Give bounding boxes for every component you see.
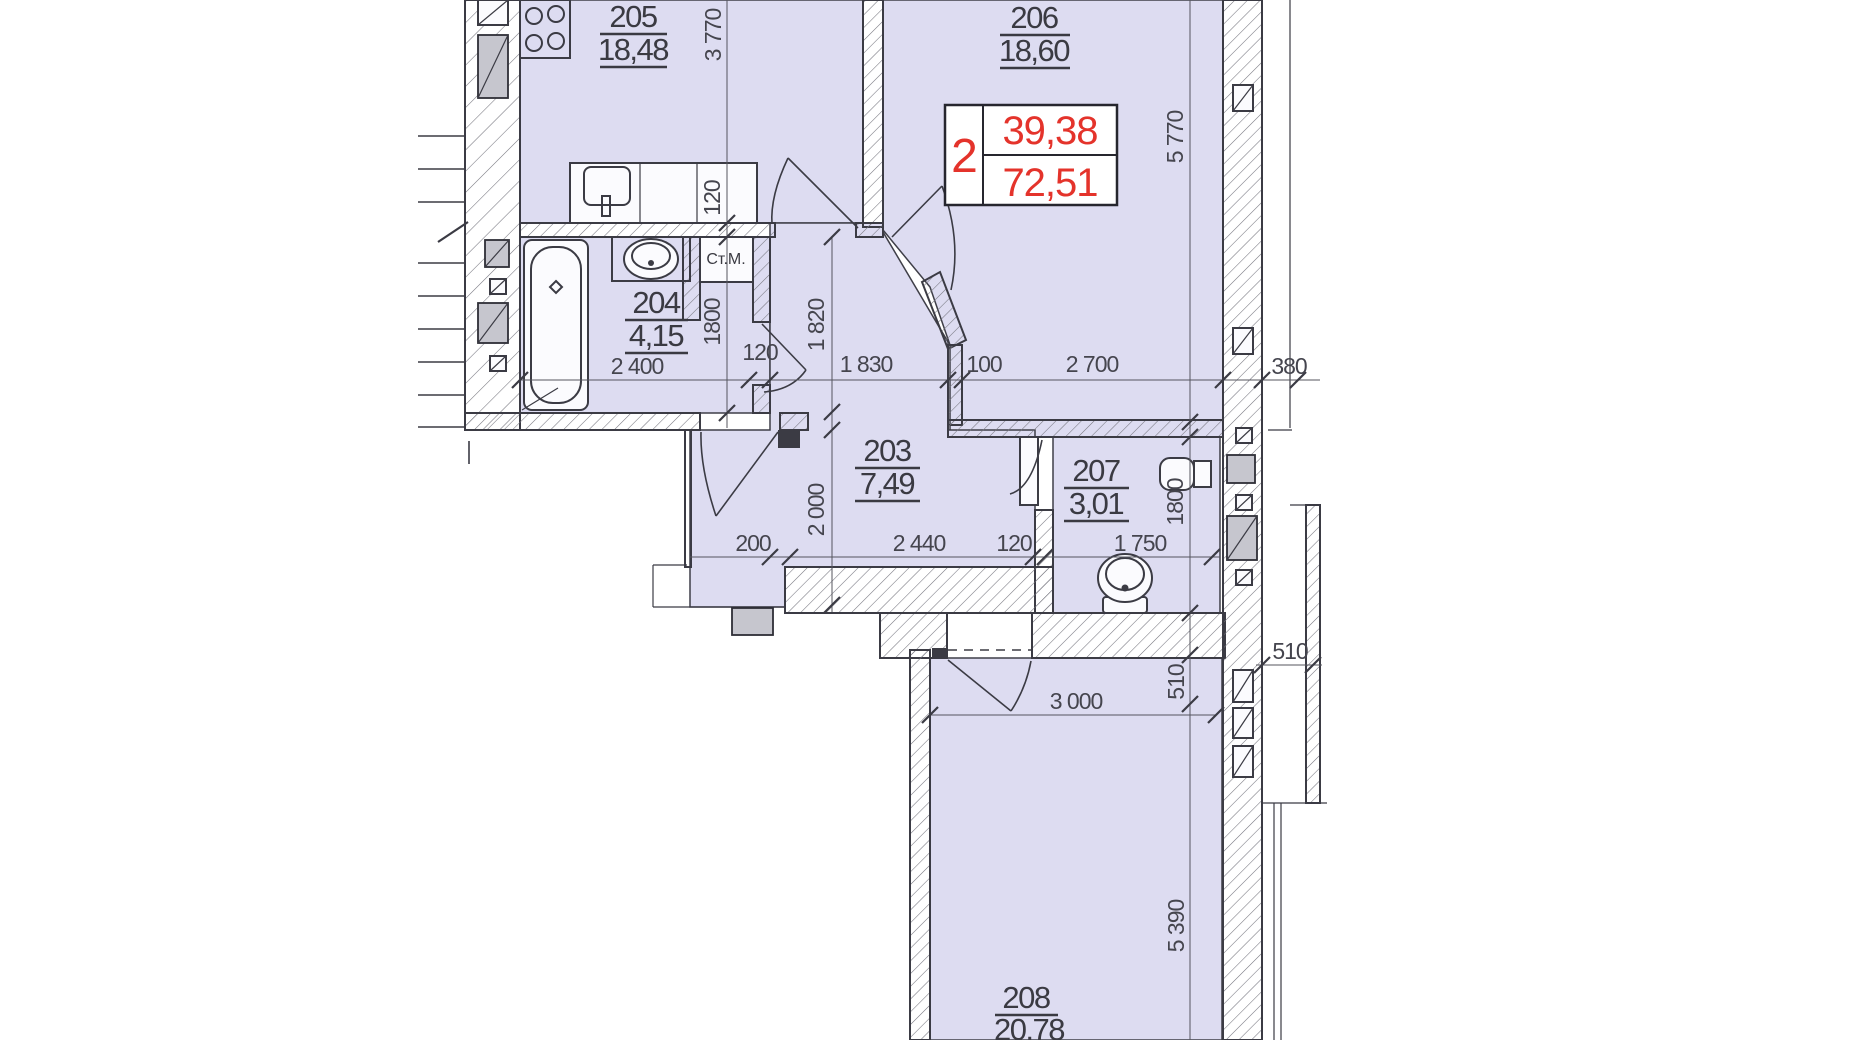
kitchen-bottom-wall: [520, 223, 775, 237]
bedroom-left-wall: [910, 650, 930, 1040]
dim-2440: 2 440: [893, 530, 946, 556]
column-block: [478, 35, 508, 98]
room-area: 4,15: [629, 318, 684, 353]
room-area: 20,78: [994, 1012, 1064, 1040]
wall-205-206: [863, 0, 883, 227]
entry-door-jamb: [778, 430, 800, 448]
kitchen-counter: [570, 163, 757, 223]
dim-5770: 5 770: [1162, 111, 1188, 164]
vent-shaft: [1233, 328, 1253, 354]
apartment-stamp: 2 39,38 72,51: [945, 105, 1117, 205]
vent-shaft: [1233, 708, 1253, 738]
lower-wall-right: [1032, 613, 1225, 658]
dim-2000: 2 000: [803, 484, 829, 537]
stair-ticks: [418, 136, 469, 464]
room-label-207: 207 3,01: [1064, 453, 1129, 521]
room-number: 207: [1072, 453, 1119, 488]
room-area: 7,49: [860, 466, 915, 501]
main-wall-left: [465, 413, 700, 430]
shaft-block: [478, 0, 508, 25]
dim-1820: 1 820: [803, 299, 829, 352]
toilet: [1098, 554, 1152, 613]
dim-1800-wc: 1800: [1162, 478, 1188, 525]
room-label-204: 204 4,15: [625, 285, 688, 353]
stub-wall-100: [948, 345, 962, 425]
room-number: 208: [1002, 980, 1049, 1015]
corridor-bottom-wall: [785, 567, 1053, 613]
bedroom-door-jamb: [932, 648, 946, 659]
stamp-living-area: 39,38: [1002, 109, 1097, 153]
kitchen-bottom-wall-right: [856, 223, 883, 237]
room-area: 18,48: [598, 32, 668, 67]
washing-machine-label: Ст.М.: [706, 251, 745, 268]
dim-510-h: 510: [1272, 638, 1308, 664]
shaft-block: [490, 279, 506, 294]
room-number: 204: [632, 285, 680, 320]
main-wall-right: [948, 420, 1223, 437]
dim-2400: 2 400: [611, 353, 664, 379]
dim-3770: 3 770: [700, 9, 726, 62]
room-area: 18,60: [999, 33, 1070, 68]
room-number: 203: [863, 433, 910, 468]
dim-510-v: 510: [1163, 664, 1189, 700]
dim-120-kitchen: 120: [699, 180, 725, 216]
floor-plan-page: Ст.М.: [0, 0, 1850, 1040]
dim-100: 100: [966, 351, 1002, 377]
main-wall-post: [780, 413, 808, 430]
vent-shaft: [1236, 495, 1252, 510]
dim-120-wc: 120: [996, 530, 1032, 556]
column-block: [1227, 455, 1255, 483]
dim-1750: 1 750: [1114, 530, 1167, 556]
room-number: 205: [609, 0, 656, 34]
floor-plan: Ст.М.: [0, 0, 1850, 1040]
dim-200: 200: [735, 530, 771, 556]
dim-5390: 5 390: [1163, 900, 1189, 953]
bathtub: [522, 240, 588, 410]
room-area: 3,01: [1069, 486, 1124, 521]
dim-380: 380: [1271, 353, 1307, 379]
stamp-apartment-number: 2: [951, 130, 977, 183]
corridor-left-wall: [685, 430, 691, 567]
dim-3000: 3 000: [1050, 688, 1103, 714]
dim-1830: 1 830: [840, 351, 893, 377]
dim-1800-bath: 1800: [699, 298, 725, 345]
vent-shaft: [1236, 428, 1252, 443]
room-number: 206: [1010, 0, 1057, 35]
shaft-block: [485, 240, 509, 267]
vent-shaft: [1233, 746, 1253, 777]
column-block: [1227, 516, 1257, 560]
corridor-column: [732, 608, 773, 635]
vent-shaft: [1236, 570, 1252, 585]
dim-2700: 2 700: [1066, 351, 1119, 377]
neighbor-wall: [1306, 505, 1320, 803]
room-label-203: 203 7,49: [855, 433, 920, 501]
dim-120-bathdoor: 120: [742, 339, 778, 365]
stamp-total-area: 72,51: [1002, 161, 1097, 205]
bath-right-wall-lower: [753, 385, 770, 413]
column-block: [478, 303, 508, 343]
niche-left-wall: [683, 237, 700, 320]
vent-shaft: [1233, 85, 1253, 111]
shaft-block: [490, 356, 506, 371]
vent-shaft: [1233, 670, 1253, 702]
bath-right-wall-upper: [753, 237, 770, 322]
